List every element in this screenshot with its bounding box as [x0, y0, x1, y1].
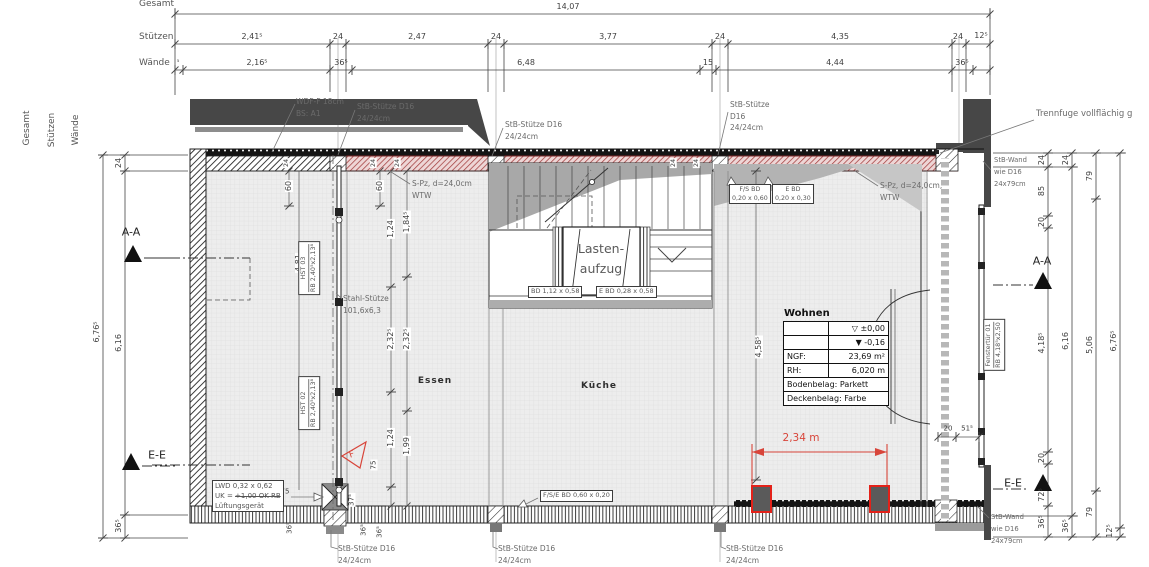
dim-stuetzen-0: 2,41⁵ [241, 33, 262, 41]
dim-stuetzen-3: 24 [491, 33, 501, 41]
dim-wall24-c: 24 [394, 158, 401, 168]
dim-wall24-a: 24 [283, 158, 290, 168]
dim-r1-20b: 20 [1038, 453, 1046, 463]
dim-365-a: 36⁵ [287, 522, 294, 534]
section-markers-left [122, 245, 175, 470]
floorplan-linework [0, 0, 1149, 567]
annotation-stahlstuetze: Stahl-Stütze101,6x6,3 [343, 293, 389, 316]
dim-door-515: 51⁵ [961, 426, 973, 433]
section-label-aa-left: A-A [122, 226, 141, 239]
annotation-wdf: WDF-F 18cmBS: A1 [296, 96, 344, 119]
dim-wall24-e: 24 [693, 158, 700, 168]
dim-wall24-d: 24 [670, 158, 677, 168]
dim-waende-0: ⁵ [177, 59, 180, 66]
dim-r3-79b: 79 [1086, 507, 1094, 517]
floorplan-drawing: Gesamt Stützen Wände 14,07 2,41⁵ 24 2,47… [0, 0, 1149, 567]
annotation-stb-bottom1: StB-Stütze D1624/24cm [338, 543, 395, 566]
top-row-label-gesamt: Gesamt [139, 0, 174, 10]
dim-waende-6: 36⁵ [955, 59, 968, 67]
dim-r1-725: 72⁵ [1038, 488, 1046, 501]
annotation-stb-bottom2: StB-Stütze D1624/24cm [498, 543, 555, 566]
left-axis-label-gesamt: Gesamt [23, 110, 33, 145]
annotation-stb-bottom3: StB-Stütze D1624/24cm [726, 543, 783, 566]
left-wall [190, 149, 206, 523]
room-label-kueche: Küche [581, 381, 617, 391]
dim-375: 37⁵ [349, 493, 356, 507]
dim-r4-total: 6,76⁵ [1110, 330, 1118, 351]
dim-stuetzen-5: 24 [715, 33, 725, 41]
dim-r1-365: 36⁵ [1038, 515, 1046, 528]
annotation-lwd-box: LWD 0,32 x 0,62 UK = +1,00 OK RB Lüftung… [212, 480, 284, 512]
level-lower: ▼ -0,16 [828, 336, 888, 349]
top-dim-lines [175, 8, 990, 95]
dim-r2-616: 6,16 [1062, 332, 1070, 350]
dim-left-24: 24 [115, 158, 123, 168]
annotation-fsbd-box: F/S BD0,20 x 0,60 [729, 184, 771, 204]
dim-r1-85: 85 [1038, 186, 1046, 196]
left-axis-label-stuetzen: Stützen [48, 113, 58, 147]
dim-left-616: 6,16 [115, 334, 123, 352]
annotation-stb-top1: StB-Stütze D1624/24cm [357, 101, 414, 124]
dim-left-365: 36⁵ [115, 519, 123, 532]
dim-2325-b: 2,32⁵ [403, 327, 411, 350]
dim-r1-20a: 20 [1038, 217, 1046, 227]
room-label-wohnen: Wohnen [784, 308, 889, 319]
dim-stuetzen-4: 3,77 [599, 33, 617, 41]
top-row-label-stuetzen: Stützen [139, 33, 173, 43]
dim-r3-506: 5,06 [1086, 336, 1094, 354]
section-label-ee-right: E-E [1004, 477, 1022, 490]
room-label-essen: Essen [418, 376, 452, 386]
dim-waende-3: 6,48 [517, 59, 535, 67]
annotation-spz-left: S-Pz, d=24,0cmWTW [412, 178, 472, 201]
rh-label: RH: [784, 364, 828, 377]
dim-365-c: 36⁵ [377, 526, 384, 538]
annotation-bd1-box: BD 1,12 x 0,58 [528, 286, 582, 298]
top-dim-ticks [172, 9, 994, 75]
dim-gesamt-total: 14,07 [557, 3, 580, 11]
dim-60-a: 60 [285, 180, 293, 192]
annotation-trennfuge: Trennfuge vollflächig g [1036, 108, 1132, 121]
floor-covering: Bodenbelag: Parkett [784, 378, 888, 391]
dim-124-b: 1,24 [387, 428, 395, 448]
dim-r2-24: 24 [1062, 155, 1070, 165]
annotation-spz-right: S-Pz, d=24,0cm,WTW [880, 180, 942, 203]
annotation-fenstertuer: Fenstertür 01RB 4,18⁵x2,50 [983, 319, 1005, 371]
dim-stuetzen-2: 2,47 [408, 33, 426, 41]
dim-left-total: 6,76⁵ [93, 321, 101, 342]
dim-stuetzen-7: 24 [953, 33, 963, 41]
dim-r1-4185: 4,18⁵ [1038, 332, 1046, 353]
annotation-hst02: HST 02RB 2,40⁵x2,13⁸ [298, 376, 320, 430]
dim-stuetzen-1: 24 [333, 33, 343, 41]
dim-199: 1,99 [403, 436, 411, 456]
annotation-ebd-box: E BD0,20 x 0,30 [772, 184, 814, 204]
level-upper: ▽ ±0,00 [828, 322, 888, 335]
left-axis-label-waende: Wände [72, 115, 82, 146]
section-label-aa-right: A-A [1033, 255, 1052, 268]
ngf-label: NGF: [784, 350, 828, 363]
dim-60-b: 60 [376, 180, 384, 192]
section-label-ee-left: E-E [148, 449, 166, 462]
dim-2325-a: 2,32⁵ [387, 327, 395, 350]
ceiling-covering: Deckenbelag: Farbe [784, 392, 888, 405]
dim-wall24-b: 24 [370, 158, 377, 168]
dim-75-b: 75 [371, 460, 378, 471]
annotation-stb-wand-bottom: StB-Wandwie D1624x79cm [991, 512, 1024, 548]
annotation-bd2-box: E BD 0,28 x 0,58 [596, 286, 657, 298]
red-dim-234: 2,34 m [783, 433, 820, 444]
wohnen-info-table: Wohnen ▽ ±0,00 ▼ -0,16 NGF:23,69 m² RH:6… [783, 308, 889, 406]
dim-r2-365: 36⁵ [1062, 519, 1070, 532]
dim-4585: 4,58⁵ [755, 335, 763, 358]
left-dim-lines [98, 155, 188, 538]
dim-124-a: 1,24 [387, 219, 395, 239]
dim-r4-125: 12⁵ [1106, 524, 1114, 537]
dim-waende-2: 36⁵ [334, 59, 347, 67]
annotation-stb-top2: StB-Stütze D1624/24cm [505, 119, 562, 142]
dim-stuetzen-6: 4,35 [831, 33, 849, 41]
dim-door-20: 20 [944, 426, 953, 433]
annotation-stb-wand-top: StB-Wandwie D1624x79cm [994, 155, 1027, 191]
dim-1845: 1,84⁵ [403, 210, 411, 233]
room-label-lastenaufzug: Lasten-aufzug [578, 239, 624, 279]
dim-365-b: 36⁵ [361, 524, 368, 536]
dim-stuetzen-8: 12⁵ [974, 32, 987, 40]
rh-value: 6,020 m [828, 364, 888, 377]
ngf-value: 23,69 m² [828, 350, 888, 363]
annotation-fse-bd: F/S/E BD 0,60 x 0,20 [540, 490, 613, 502]
annotation-stb-top3: StB-StützeD1624/24cm [730, 99, 770, 134]
dim-r1-24: 24 [1038, 155, 1046, 165]
dim-waende-1: 2,16⁵ [246, 59, 267, 67]
dim-waende-5: 4,44 [826, 59, 844, 67]
top-row-label-waende: Wände [139, 59, 170, 69]
dim-waende-4: 15 [703, 59, 713, 67]
annotation-hst03: HST 03RB 2,40⁵x2,13⁸ [298, 241, 320, 295]
dim-r3-79a: 79 [1086, 171, 1094, 181]
